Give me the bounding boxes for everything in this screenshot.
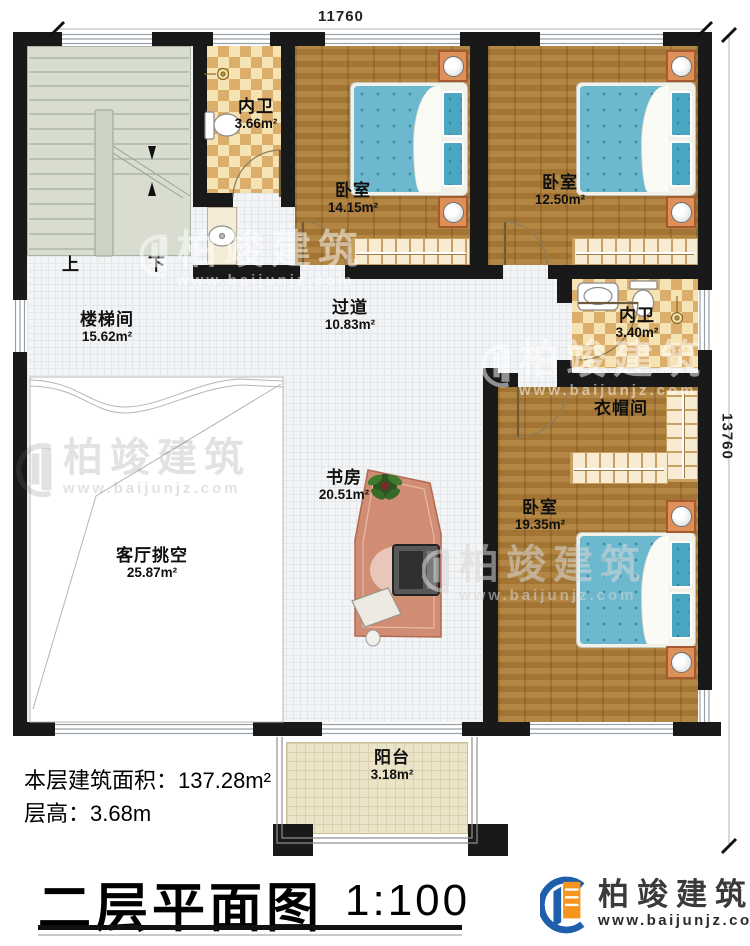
floor-height-value: 3.68m [90,801,151,826]
wall [345,265,503,279]
room-label-bedroom1: 卧室 14.15m² [328,181,378,215]
wall [193,193,233,207]
bedroom2-bed [576,82,696,196]
bedroom1-nightstand-top [438,50,468,82]
bedroom1-wardrobe [352,238,470,265]
floor-area-info: 本层建筑面积：137.28m² [24,763,271,795]
sheet-scale: 1:100 [345,876,470,926]
wall [462,722,530,736]
wall [548,265,698,279]
wall [470,46,488,265]
lamp-icon [671,652,692,673]
wardrobe-rail [576,252,694,254]
balcony-pillar [468,824,508,856]
wall [568,373,698,387]
bedroom1-bed [350,82,468,196]
floor-area-value: 137.28m² [178,768,271,793]
wall [673,722,721,736]
dimension-right: 13760 [719,405,736,469]
bedroom3-pillows [670,541,692,639]
pillow [442,141,464,187]
lamp-icon [671,56,692,77]
bedroom3-bed [576,532,696,648]
brand-logo-icon [540,874,590,934]
room-label-bedroom2: 卧室 12.50m² [535,173,585,207]
wall [13,32,27,300]
pillow [670,541,692,588]
wall [193,265,300,279]
wall [13,722,55,736]
floor-height-info: 层高：3.68m [24,796,151,828]
cloakroom-rack-horizontal [570,452,668,484]
pillow [670,141,692,187]
room-label-living-void: 客厅挑空 25.87m² [116,546,188,580]
stairwell-floor [27,46,191,256]
floor-plan-canvas: 11760 13760 楼梯间 15.62m² 内卫 3.66m² 卧室 14.… [0,0,750,946]
brand-url: www.baijunjz.com [598,912,750,929]
wall [483,368,498,722]
sheet-title: 二层平面图 [38,866,323,942]
bedroom2-nightstand-bottom [666,196,696,228]
bedroom2-nightstand-top [666,50,696,82]
wall [557,279,572,303]
lamp-icon [671,202,692,223]
dimension-top: 11760 [318,8,364,25]
brand-logo: 柏竣建筑 www.baijunjz.com [540,874,750,934]
bedroom3-nightstand-bottom [666,646,696,679]
room-label-corridor: 过道 10.83m² [325,298,375,332]
pillow [670,91,692,137]
balcony-pillar [273,824,313,856]
lamp-icon [443,56,464,77]
brand-name: 柏竣建筑 [598,879,750,912]
wardrobe-rail [356,252,466,254]
wall [193,32,207,197]
lamp-icon [443,202,464,223]
wall [253,722,322,736]
floor-area-label: 本层建筑面积： [24,768,178,793]
stairs-up-label: 上 [62,250,79,275]
bedroom2-pillows [670,91,692,187]
cloakroom-rack-vertical [666,390,698,482]
room-label-bedroom3: 卧室 19.35m² [515,498,565,532]
bedroom3-nightstand-top [666,500,696,533]
sink-alcove-floor [207,207,237,265]
pillow [670,592,692,639]
wardrobe-rail [682,394,684,478]
title-underline [38,925,462,930]
room-label-cloakroom: 衣帽间 [594,399,648,418]
stairs-down-label: 下 [148,250,165,275]
bedroom2-wardrobe [572,238,698,265]
room-label-bathroom1: 内卫 3.66m² [235,97,278,131]
bedroom1-pillows [442,91,464,187]
pillow [442,91,464,137]
wardrobe-rail [574,468,664,470]
wall [498,373,518,387]
room-label-balcony: 阳台 3.18m² [371,748,414,782]
wall [460,32,540,46]
room-label-stairwell: 楼梯间 15.62m² [80,310,134,344]
floor-height-label: 层高： [24,801,90,826]
wall [281,46,295,207]
bedroom1-nightstand-bottom [438,196,468,228]
wall [698,350,712,690]
wall [270,32,325,46]
room-label-study: 书房 20.51m² [319,468,369,502]
wall [698,32,712,290]
title-underline-light [38,934,462,936]
room-label-bathroom2: 内卫 3.40m² [616,306,659,340]
wall [13,352,27,722]
lamp-icon [671,506,692,527]
